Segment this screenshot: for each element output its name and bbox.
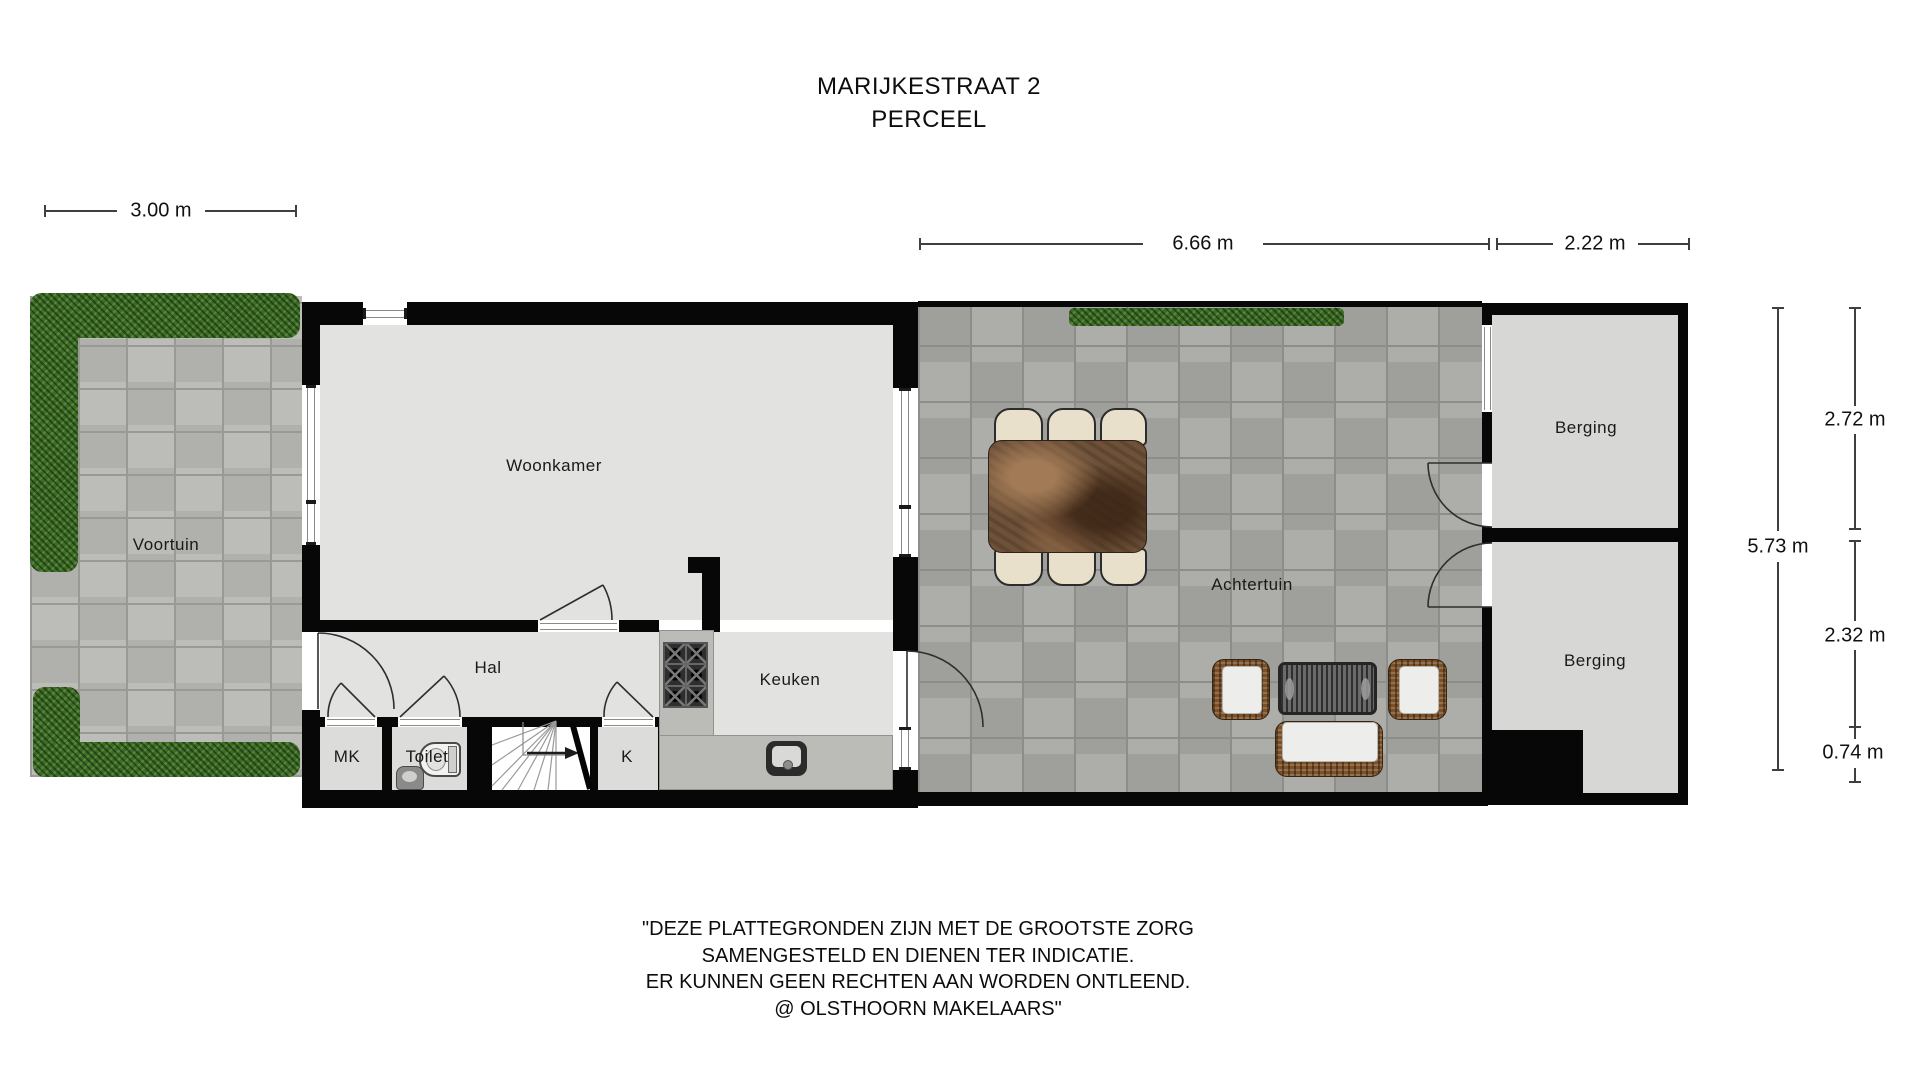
window-frame: [306, 385, 316, 388]
hedge: [30, 293, 78, 572]
wall-segment: [1482, 527, 1492, 543]
window-glass: [307, 387, 315, 543]
door-sill: [538, 620, 619, 632]
wall-segment: [893, 770, 918, 792]
room-label-shed-top: Berging: [1555, 418, 1617, 438]
wall-segment: [1482, 303, 1688, 315]
room-label-kitchen: Keuken: [760, 670, 821, 690]
dimension-line: [1638, 243, 1689, 245]
dimension-label-front-width: 3.00 m: [126, 200, 195, 223]
room-label-toilet: Toilet: [406, 747, 449, 767]
title-subtitle: PERCEEL: [817, 103, 1041, 136]
room-label-back-garden: Achtertuin: [1211, 575, 1293, 595]
window-frame: [899, 727, 911, 730]
room-label-closet: K: [621, 747, 633, 767]
dimension-line: [1854, 541, 1856, 621]
dimension-line: [1777, 308, 1779, 531]
dimension-tick: [1849, 781, 1861, 783]
dimension-label-shed-bottom: 2.32 m: [1820, 625, 1889, 648]
dimension-tick: [1849, 528, 1861, 530]
title-address: MARIJKESTRAAT 2: [817, 70, 1041, 103]
stove-burner: [687, 687, 707, 706]
window-frame: [363, 308, 366, 319]
disclaimer-text: "DEZE PLATTEGRONDEN ZIJN MET DE GROOTSTE…: [642, 916, 1194, 1022]
window-frame: [899, 554, 911, 557]
disclaimer-line: SAMENGESTELD EN DIENEN TER INDICATIE.: [642, 943, 1194, 970]
wall-segment: [302, 545, 320, 632]
window-frame: [899, 505, 911, 509]
room-label-hall: Hal: [474, 658, 501, 678]
window: [1482, 325, 1492, 412]
stove-burner: [665, 665, 685, 684]
front-door-opening: [302, 632, 320, 710]
door-sill-lines: [540, 623, 617, 630]
hedge: [33, 742, 300, 777]
stove-burner: [687, 644, 707, 663]
dimension-line: [1854, 650, 1856, 727]
dimension-tick: [919, 238, 921, 250]
door-sill-lines: [604, 719, 653, 726]
lounge-sofa: [1275, 721, 1383, 777]
wall-segment: [302, 717, 325, 727]
chair-cushion: [1399, 666, 1439, 714]
toilet-sink-basin: [402, 771, 417, 782]
wall-segment: [1482, 303, 1492, 325]
dimension-label-shed-top: 2.72 m: [1820, 409, 1889, 432]
shed-door-opening: [1482, 463, 1492, 527]
dimension-line: [1497, 243, 1553, 245]
table-handle: [1361, 678, 1370, 700]
garden-fence: [918, 301, 1482, 307]
window-frame: [899, 388, 911, 391]
back-door-opening: [893, 651, 918, 727]
wall-segment: [467, 718, 492, 790]
dimension-tick: [295, 205, 297, 217]
lounge-chair: [1212, 659, 1270, 720]
dimension-line: [1263, 243, 1489, 245]
dimension-tick: [1772, 307, 1784, 309]
window: [893, 727, 918, 770]
floor-plan-canvas: MARIJKESTRAAT 2 PERCEEL 3.00 m 6.66 m 2.…: [0, 0, 1920, 1080]
window: [893, 388, 918, 557]
wall-segment: [590, 718, 598, 790]
room-label-living-room: Woonkamer: [506, 456, 602, 476]
sink-drain: [783, 760, 793, 770]
shed-door-opening: [1482, 543, 1492, 607]
living-room-floor: [320, 325, 893, 620]
dimension-tick: [44, 205, 46, 217]
wall-segment: [1678, 303, 1688, 805]
window-frame: [899, 767, 911, 770]
dimension-line: [1777, 562, 1779, 770]
table-handle: [1285, 678, 1294, 700]
toilet-tank: [448, 746, 457, 773]
disclaimer-line: "DEZE PLATTEGRONDEN ZIJN MET DE GROOTSTE…: [642, 916, 1194, 943]
dimension-line: [1854, 768, 1856, 782]
wall-segment: [302, 302, 363, 325]
dimension-tick: [1496, 238, 1498, 250]
lounge-chair: [1388, 659, 1447, 720]
stove-icon: [663, 642, 708, 708]
wall-segment: [320, 620, 538, 632]
stairs-floor: [492, 727, 590, 790]
window-frame: [404, 308, 407, 319]
toilet-sink-icon: [396, 766, 424, 790]
wall-segment: [302, 325, 320, 385]
dimension-tick: [1849, 540, 1861, 542]
disclaimer-line: ER KUNNEN GEEN RECHTEN AAN WORDEN ONTLEE…: [642, 969, 1194, 996]
window-frame: [306, 500, 316, 504]
garden-wall: [918, 792, 1488, 806]
dimension-tick: [1488, 238, 1490, 250]
dimension-line: [1854, 308, 1856, 406]
window-frame: [306, 542, 316, 545]
wall-segment: [407, 302, 918, 325]
garden-dining-table: [988, 440, 1147, 553]
dimension-tick: [1688, 238, 1690, 250]
dimension-line: [1854, 434, 1856, 529]
wall-segment: [1482, 412, 1492, 463]
window-glass: [901, 729, 909, 768]
wall-segment: [893, 557, 918, 651]
dimension-line: [1854, 727, 1856, 739]
stove-burner: [665, 687, 685, 706]
door-sill: [398, 717, 462, 727]
window: [363, 302, 407, 325]
room-label-meter-closet: MK: [334, 747, 361, 767]
dimension-line: [205, 210, 296, 212]
kitchen-sink-icon: [766, 741, 807, 776]
wall-segment: [619, 620, 659, 632]
window-glass: [365, 310, 405, 318]
wall-segment: [893, 325, 918, 388]
door-sill-lines: [327, 719, 375, 726]
chair-cushion: [1222, 666, 1262, 714]
shed-notch-block: [1487, 730, 1583, 793]
dining-chair: [994, 548, 1043, 586]
stove-burner: [687, 665, 707, 684]
wall-segment: [688, 557, 710, 573]
window: [302, 385, 320, 545]
door-sill: [325, 717, 377, 727]
window-glass: [901, 390, 909, 555]
dimension-line: [45, 210, 117, 212]
door-sill: [602, 717, 655, 727]
dimension-label-garden-width: 6.66 m: [1168, 233, 1237, 256]
wall-segment: [382, 718, 392, 790]
wall-segment: [1482, 793, 1688, 805]
page-title: MARIJKESTRAAT 2 PERCEEL: [817, 70, 1041, 136]
room-label-shed-bottom: Berging: [1564, 651, 1626, 671]
dimension-line: [920, 243, 1143, 245]
stove-burner: [665, 644, 685, 663]
wall-segment: [302, 790, 918, 808]
dimension-tick: [1772, 769, 1784, 771]
wall-segment: [1492, 528, 1678, 542]
room-label-front-garden: Voortuin: [133, 535, 199, 555]
window-glass: [1484, 327, 1491, 410]
dimension-label-shed-width: 2.22 m: [1560, 233, 1629, 256]
door-sill-lines: [400, 719, 460, 726]
dimension-label-shed-notch: 0.74 m: [1818, 742, 1887, 765]
disclaimer-line: @ OLSTHOORN MAKELAARS": [642, 996, 1194, 1023]
dimension-tick: [1849, 307, 1861, 309]
hedge: [1069, 308, 1344, 326]
dining-chair: [1047, 548, 1096, 586]
dimension-label-right-total: 5.73 m: [1743, 536, 1812, 559]
dining-chair: [1100, 548, 1147, 586]
sofa-cushion: [1282, 722, 1378, 762]
